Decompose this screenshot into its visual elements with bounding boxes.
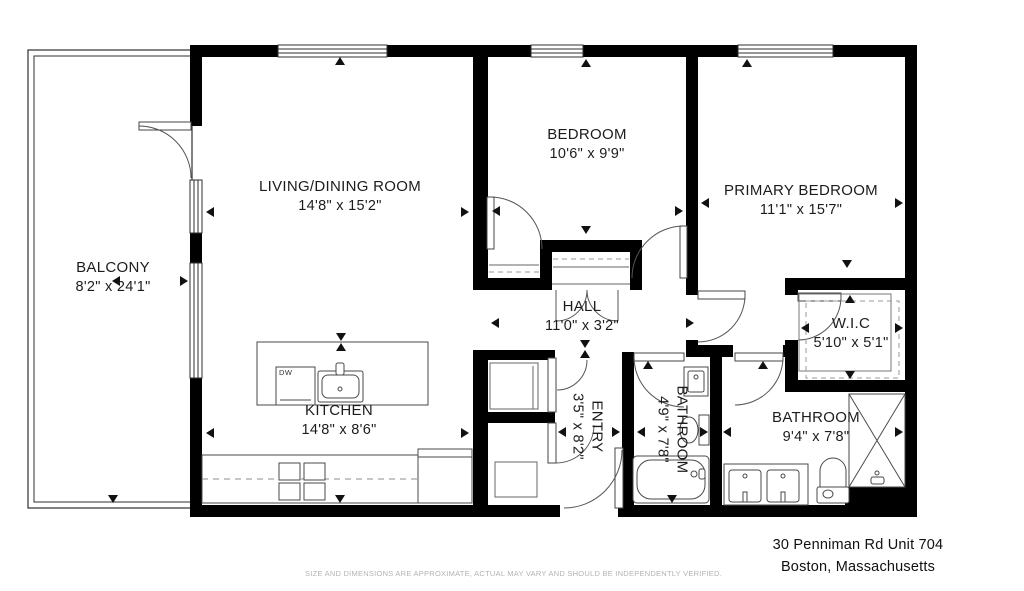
room-dims: 11'1" x 15'7" [701,201,901,220]
window [531,45,583,57]
room-name: BATHROOM [672,349,692,509]
room-name: PRIMARY BEDROOM [701,181,901,201]
room-name: BEDROOM [507,125,667,145]
bathroom2-door [735,353,783,405]
room-label-primary-bedroom: PRIMARY BEDROOM 11'1" x 15'7" [701,181,901,220]
address: 30 Penniman Rd Unit 704 Boston, Massachu… [754,535,962,579]
room-name: W.I.C [771,314,931,334]
room-label-bathroom1: BATHROOM 4'9" x 7'8" [653,349,692,509]
room-label-entry: ENTRY 3'5" x 8'2" [568,366,607,486]
shower-head [871,477,884,484]
room-name: ENTRY [587,366,607,486]
address-line-1: 30 Penniman Rd Unit 704 [754,535,962,557]
room-name: LIVING/DINING ROOM [240,177,440,197]
floor-plan: BALCONY 8'2" x 24'1" LIVING/DINING ROOM … [0,0,1024,591]
balcony-door [139,122,191,178]
room-label-kitchen: KITCHEN 14'8" x 8'6" [239,401,439,440]
bedroom-closet-door [487,197,542,249]
address-line-2: Boston, Massachusetts [754,557,962,579]
room-dims: 5'10" x 5'1" [771,334,931,353]
window [278,45,387,57]
room-name: KITCHEN [239,401,439,421]
room-dims: 14'8" x 15'2" [240,197,440,216]
entry-closet-b [495,462,537,497]
room-label-wic: W.I.C 5'10" x 5'1" [771,314,931,353]
room-label-balcony: BALCONY 8'2" x 24'1" [33,258,193,297]
faucet [336,363,344,375]
room-label-bathroom2: BATHROOM 9'4" x 7'8" [716,408,916,447]
room-dims: 3'5" x 8'2" [568,366,587,486]
room-dims: 10'6" x 9'9" [507,145,667,164]
room-dims: 11'0" x 3'2" [502,317,662,336]
disclaimer-text: SIZE AND DIMENSIONS ARE APPROXIMATE, ACT… [305,569,660,578]
room-label-living: LIVING/DINING ROOM 14'8" x 15'2" [240,177,440,216]
room-dims: 14'8" x 8'6" [239,421,439,440]
room-label-bedroom: BEDROOM 10'6" x 9'9" [507,125,667,164]
room-name: HALL [502,297,662,317]
toilet-bowl [820,458,846,487]
room-dims: 9'4" x 7'8" [716,428,916,447]
dishwasher-label: DW [279,368,292,377]
room-label-hall: HALL 11'0" x 3'2" [502,297,662,336]
room-name: BATHROOM [716,408,916,428]
entry-closet-a [490,363,538,409]
window [738,45,833,57]
room-dims: 8'2" x 24'1" [33,278,193,297]
room-dims: 4'9" x 7'8" [653,349,672,509]
primary-bedroom-door [698,291,745,342]
window [190,180,202,233]
room-name: BALCONY [33,258,193,278]
